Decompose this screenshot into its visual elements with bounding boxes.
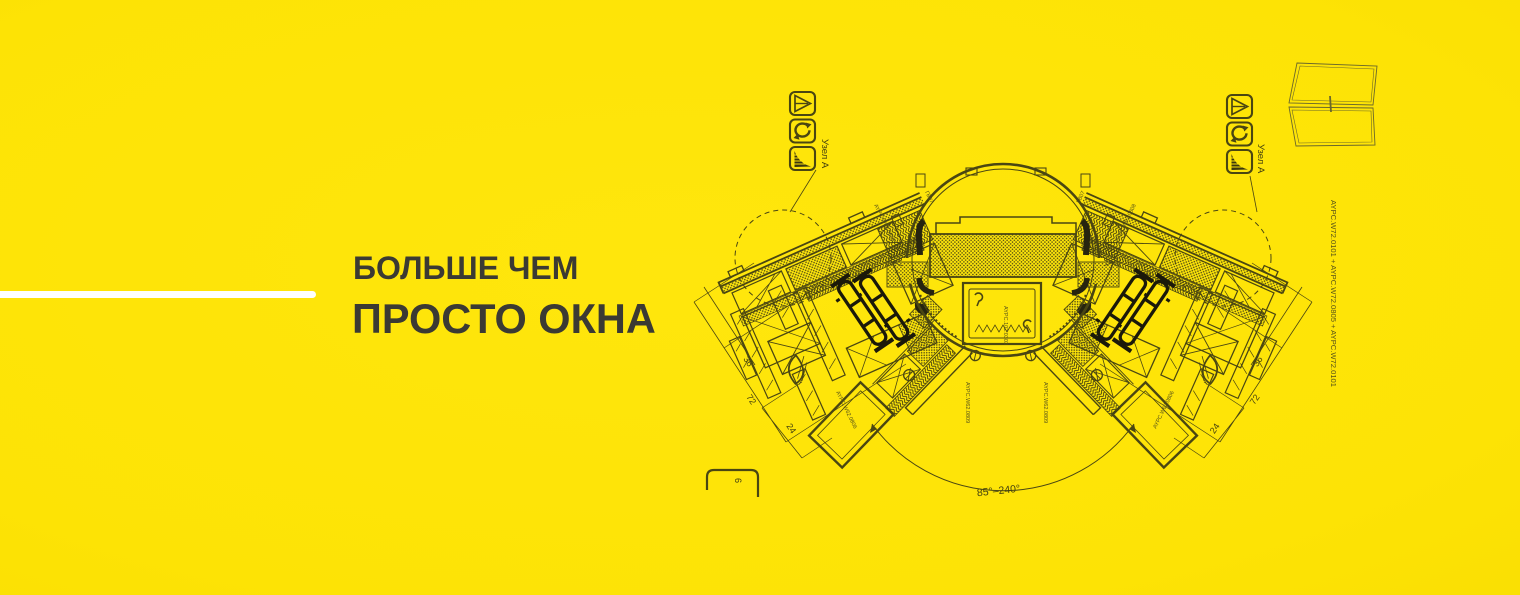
- svg-text:Узел А: Узел А: [819, 139, 830, 169]
- svg-text:БОЛЬШЕ ЧЕМ: БОЛЬШЕ ЧЕМ: [353, 250, 578, 286]
- svg-text:ПРОСТО ОКНА: ПРОСТО ОКНА: [352, 295, 656, 342]
- svg-text:AYPC.W72.0101 + AYPC.W72.0805: AYPC.W72.0101 + AYPC.W72.0805 + AYPC.W72…: [1329, 200, 1338, 387]
- svg-text:6: 6: [733, 478, 743, 483]
- svg-text:AYPC.W62.0809: AYPC.W62.0809: [964, 382, 970, 423]
- svg-text:AYPC.W62.0809: AYPC.W62.0809: [1042, 382, 1048, 423]
- svg-text:Узел А: Узел А: [1255, 144, 1266, 174]
- svg-text:AYPC.102.0303: AYPC.102.0303: [1002, 306, 1008, 345]
